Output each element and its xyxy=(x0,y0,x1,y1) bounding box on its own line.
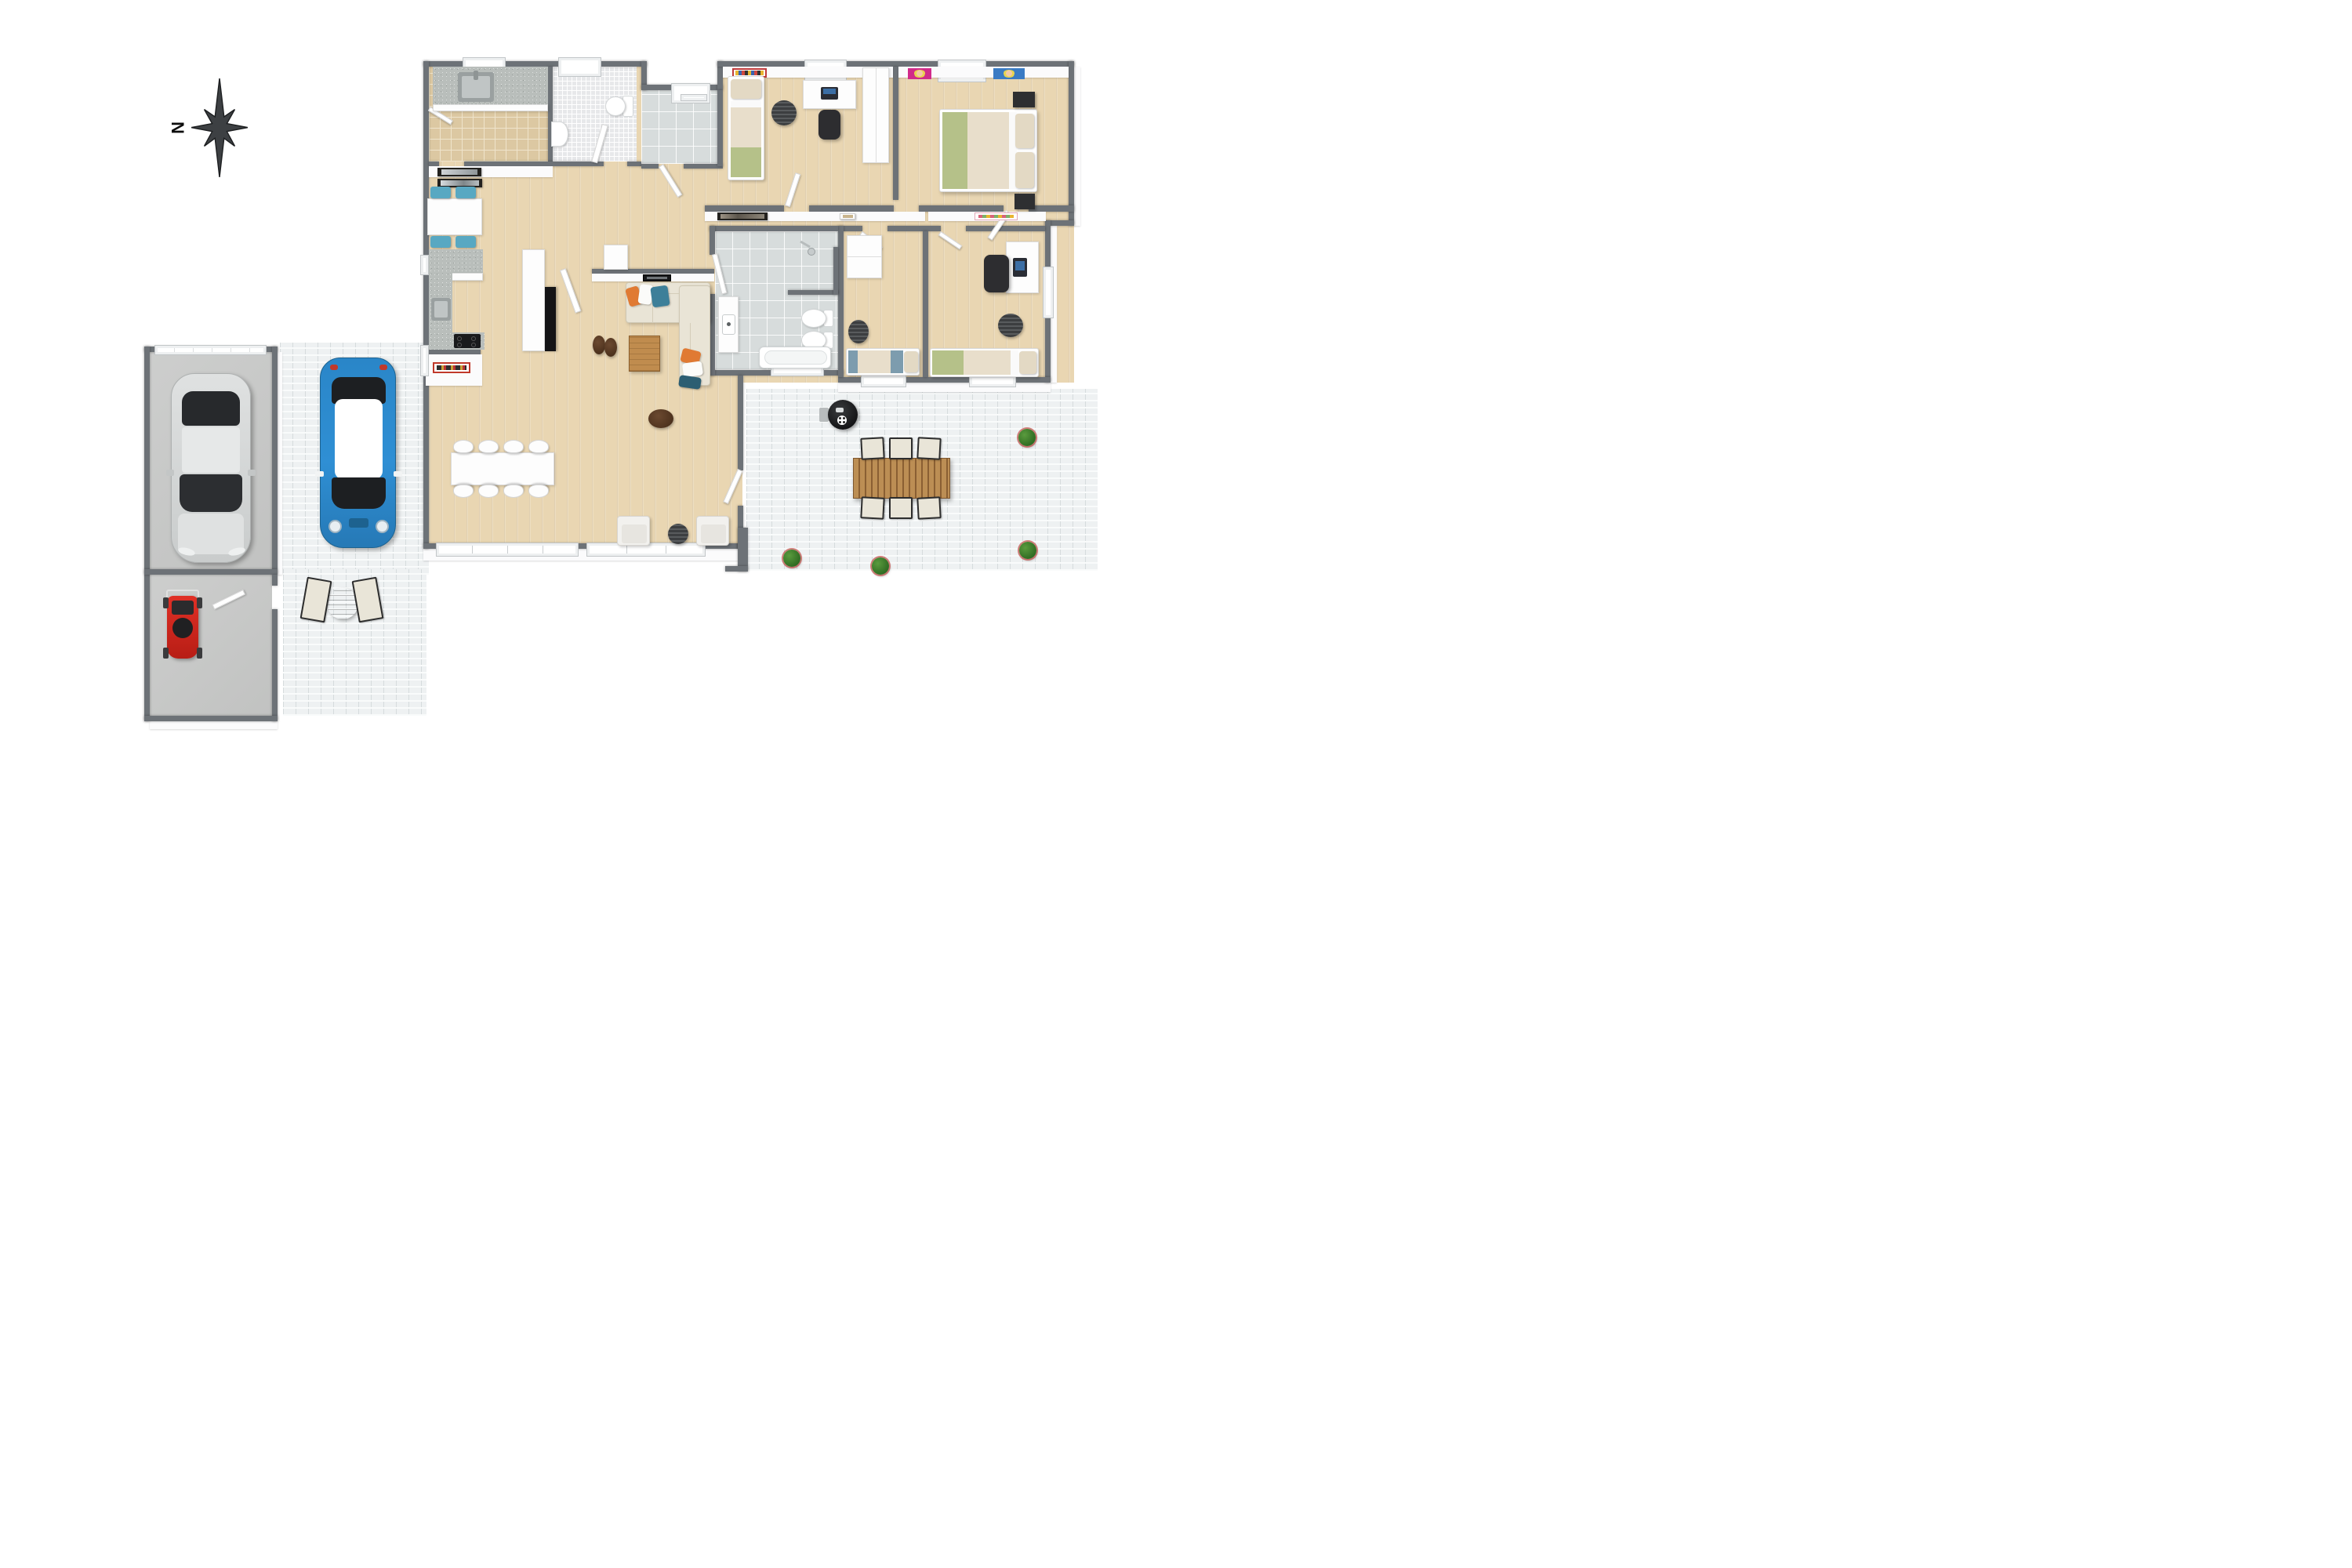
bath2-vanity xyxy=(718,296,739,353)
wall-kid-master xyxy=(893,67,898,200)
pouf-3 xyxy=(648,409,673,428)
exterior-notch xyxy=(647,67,717,85)
wall-north-right xyxy=(717,61,1074,67)
patio-stub-wall xyxy=(738,528,748,572)
wall-bath2-shower-v xyxy=(833,247,838,295)
shower-icon xyxy=(798,241,822,259)
kitchen-red-poster xyxy=(433,362,470,373)
wall-hall-b xyxy=(809,205,894,212)
kitchen-chair-4 xyxy=(456,236,476,248)
outdoor-chair-2 xyxy=(889,437,913,459)
shed-wall-right-a xyxy=(272,575,278,586)
wall-west xyxy=(423,61,429,549)
kid-wardrobe xyxy=(862,67,889,163)
kid-stool xyxy=(771,100,797,125)
kitchen-sink xyxy=(431,298,451,321)
bed4-office-chair xyxy=(984,255,1009,292)
bed4-rug xyxy=(998,314,1023,337)
fireplace xyxy=(545,287,556,351)
master-poster-blue xyxy=(993,68,1025,79)
outdoor-chair-1 xyxy=(860,437,884,460)
bed4-poster xyxy=(975,212,1018,220)
dining-chair-5 xyxy=(453,485,474,498)
coffee-table xyxy=(629,336,660,372)
outdoor-chair-6 xyxy=(916,496,941,520)
master-poster-pink xyxy=(908,68,931,79)
wall-hall-a xyxy=(705,205,784,212)
side-table xyxy=(668,524,688,544)
plant-2 xyxy=(1019,542,1036,559)
wall-bath2-west-a xyxy=(710,226,715,255)
window-bed4-east xyxy=(1043,267,1054,318)
wall-east-living-a xyxy=(738,376,743,470)
toilet-top xyxy=(605,94,635,119)
compass-north-label: N xyxy=(167,122,187,134)
dining-chair-6 xyxy=(478,485,499,498)
dining-chair-4 xyxy=(528,440,549,453)
wall-bath2-north xyxy=(710,226,838,231)
faucet-icon xyxy=(474,71,478,80)
sideboard xyxy=(604,245,628,270)
bathtub xyxy=(759,347,831,368)
cooktop xyxy=(454,334,481,348)
kitchen-table xyxy=(427,198,482,235)
wall-bed3-west xyxy=(838,226,844,377)
bed4-desk xyxy=(1006,241,1039,293)
garage-shed-divider xyxy=(144,569,278,575)
tall-cabinet xyxy=(522,249,545,351)
utility-sink xyxy=(458,72,494,102)
kitchen-chair-1 xyxy=(430,187,451,198)
wall-rightwing-north-c xyxy=(966,226,1045,231)
outdoor-chair-3 xyxy=(916,437,941,460)
wall-kid-west xyxy=(717,90,723,166)
bed4 xyxy=(930,348,1039,377)
dining-chair-8 xyxy=(528,485,549,498)
window-west-dining xyxy=(420,345,429,376)
kid-bed xyxy=(728,76,764,180)
bed3 xyxy=(846,348,920,376)
dining-table xyxy=(451,452,554,485)
armchair-1 xyxy=(617,516,650,546)
laptop-icon xyxy=(821,87,838,100)
front-doormat xyxy=(681,94,707,101)
kitchen-chair-3 xyxy=(430,236,451,248)
wall-utility-bath xyxy=(548,67,553,162)
wall-hall-c xyxy=(919,205,1004,212)
outdoor-chair-4 xyxy=(860,496,884,520)
compass-star-icon xyxy=(191,78,248,177)
tv xyxy=(643,274,671,281)
grill xyxy=(825,400,859,431)
plant-1 xyxy=(1018,429,1036,446)
kitchen-chair-2 xyxy=(456,187,476,198)
wall-bath2-west-b xyxy=(710,294,715,376)
pedestal-sink xyxy=(551,122,568,147)
hall-artwork-large xyxy=(717,212,768,220)
garage-east-face xyxy=(278,352,282,575)
wall-rightwing-north-b xyxy=(887,226,941,231)
kid-office-chair xyxy=(818,110,840,140)
dining-chair-2 xyxy=(478,440,499,453)
window-living-1 xyxy=(436,543,579,557)
nightstand-bottom xyxy=(1014,194,1035,209)
wall-bath-south-b xyxy=(627,162,641,166)
compass: N xyxy=(165,78,267,180)
utility-artwork xyxy=(437,168,481,176)
laptop-icon-2 xyxy=(1013,258,1027,277)
pouf-1 xyxy=(593,336,605,354)
floor-plan: N xyxy=(0,0,1176,784)
silver-car xyxy=(171,373,251,563)
lawn-mower xyxy=(165,590,201,663)
hall-artwork-small xyxy=(840,213,855,220)
utility-cabinets xyxy=(433,104,548,111)
outdoor-table xyxy=(853,458,950,499)
outdoor-chair-5 xyxy=(889,497,913,519)
garage-wall-left xyxy=(144,347,150,721)
kid-desk xyxy=(803,80,856,109)
dining-chair-7 xyxy=(503,485,524,498)
wall-north-left xyxy=(423,61,647,67)
shed-wall-right-b xyxy=(272,609,278,721)
garage-door xyxy=(154,345,267,355)
patio-stub-foot xyxy=(725,566,748,572)
plant-4 xyxy=(872,557,889,575)
east-face-master xyxy=(1074,67,1080,226)
window-bed3 xyxy=(861,375,906,387)
wall-east-master xyxy=(1069,61,1074,226)
bed3-rug xyxy=(848,320,869,343)
window-west-kitchen xyxy=(420,255,429,275)
toilet-1 xyxy=(801,308,834,328)
garage-wall-right xyxy=(272,347,278,575)
bed3-wardrobe xyxy=(847,235,882,278)
armchair-2 xyxy=(696,516,729,546)
wall-bath2-shower-h xyxy=(788,290,838,295)
blue-car xyxy=(320,358,396,548)
pillow-teal-1 xyxy=(650,285,670,308)
wall-mudroom-south-a xyxy=(641,164,659,169)
nightstand-top xyxy=(1013,92,1035,107)
pouf-2 xyxy=(604,338,617,357)
dining-chair-1 xyxy=(453,440,474,453)
dining-chair-3 xyxy=(503,440,524,453)
shed-wall-bottom xyxy=(144,716,278,721)
wall-bed3-bed4 xyxy=(923,231,928,377)
window-bath-top xyxy=(558,57,601,77)
wall-hall-d xyxy=(1029,205,1074,212)
master-bed xyxy=(939,109,1037,192)
plant-3 xyxy=(783,550,800,567)
shed-south-face xyxy=(150,721,278,729)
